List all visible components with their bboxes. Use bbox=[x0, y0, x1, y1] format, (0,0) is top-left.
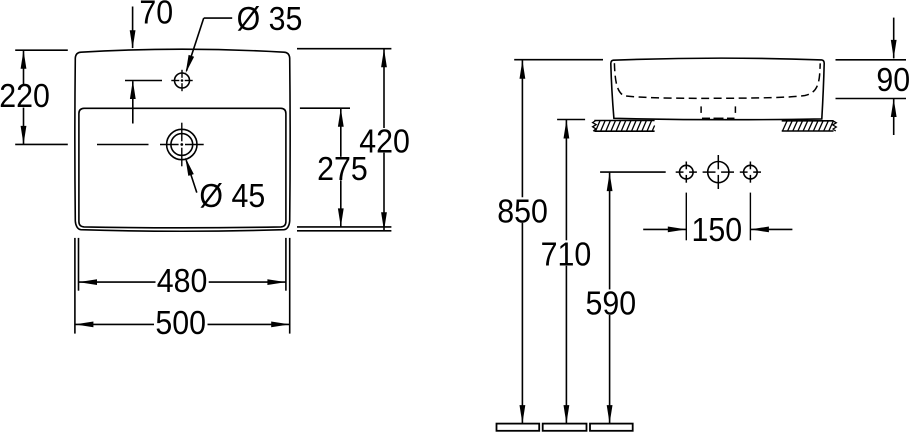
svg-text:Ø 45: Ø 45 bbox=[199, 177, 265, 214]
svg-text:Ø 35: Ø 35 bbox=[237, 0, 303, 37]
svg-text:70: 70 bbox=[139, 0, 173, 31]
svg-text:150: 150 bbox=[691, 211, 742, 248]
svg-text:590: 590 bbox=[585, 284, 636, 321]
svg-text:275: 275 bbox=[317, 150, 368, 187]
svg-text:480: 480 bbox=[157, 262, 208, 299]
svg-text:850: 850 bbox=[497, 192, 548, 229]
svg-text:710: 710 bbox=[541, 235, 592, 272]
svg-text:90: 90 bbox=[876, 61, 910, 98]
svg-text:220: 220 bbox=[0, 77, 50, 114]
svg-text:500: 500 bbox=[155, 304, 206, 341]
